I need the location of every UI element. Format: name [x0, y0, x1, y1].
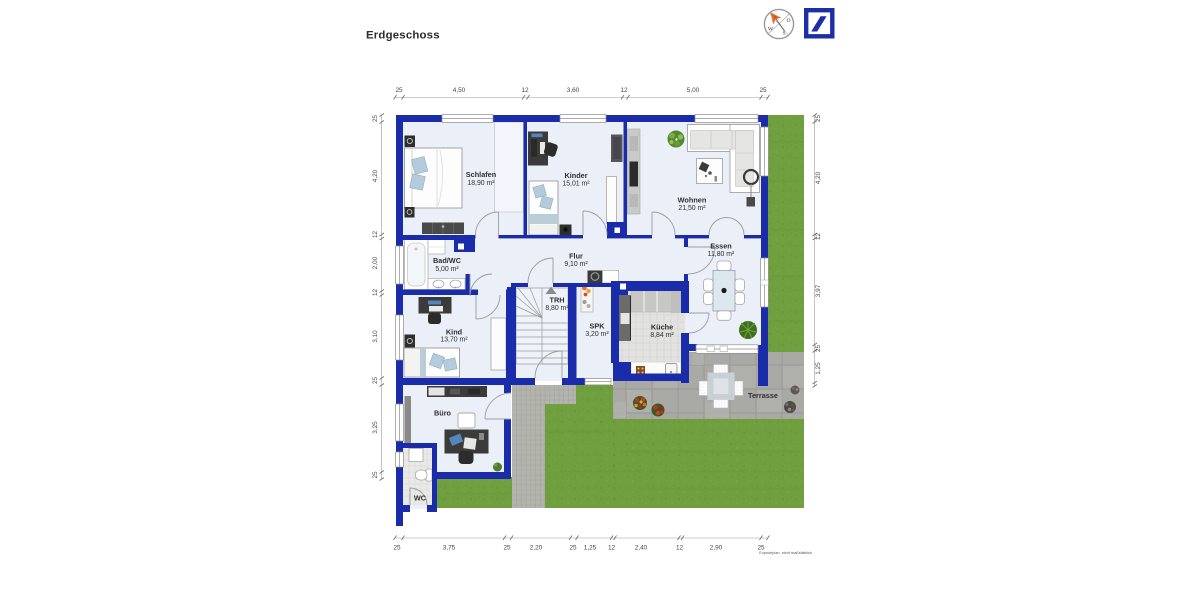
svg-text:9,10 m²: 9,10 m²	[564, 261, 588, 268]
svg-text:5,00: 5,00	[687, 87, 700, 94]
svg-text:25: 25	[569, 545, 577, 552]
svg-text:3,60: 3,60	[567, 87, 580, 94]
svg-text:25: 25	[759, 87, 767, 94]
svg-text:18,90 m²: 18,90 m²	[467, 180, 495, 187]
svg-text:Schlafen: Schlafen	[466, 170, 496, 179]
svg-text:12: 12	[676, 545, 684, 552]
svg-text:SPK: SPK	[589, 322, 605, 331]
svg-text:Terrasse: Terrasse	[748, 391, 778, 400]
svg-text:Flur: Flur	[569, 252, 583, 261]
svg-text:Erdgeschoss: Erdgeschoss	[366, 30, 440, 42]
svg-text:11,80 m²: 11,80 m²	[708, 251, 735, 258]
svg-text:13,70 m²: 13,70 m²	[440, 337, 468, 344]
svg-text:25: 25	[372, 377, 379, 385]
svg-text:1,25: 1,25	[815, 362, 822, 375]
svg-text:25: 25	[372, 115, 379, 123]
svg-text:Bad/WC: Bad/WC	[433, 256, 462, 265]
svg-text:8,84 m²: 8,84 m²	[650, 332, 674, 339]
svg-text:2,20: 2,20	[530, 545, 543, 552]
svg-text:12: 12	[521, 87, 529, 94]
svg-text:WC: WC	[414, 494, 427, 503]
svg-text:Kinder: Kinder	[564, 171, 587, 180]
svg-text:W: W	[768, 27, 774, 33]
svg-text:TRH: TRH	[550, 296, 565, 305]
svg-text:Exposéplan, nicht maßstäblich: Exposéplan, nicht maßstäblich	[759, 550, 812, 555]
svg-text:12: 12	[815, 233, 822, 241]
svg-text:Essen: Essen	[710, 242, 732, 251]
svg-text:3,20 m²: 3,20 m²	[585, 331, 609, 338]
svg-text:21,50 m²: 21,50 m²	[678, 205, 706, 212]
svg-text:25: 25	[815, 115, 822, 123]
svg-text:4,20: 4,20	[372, 169, 379, 182]
svg-text:25: 25	[503, 545, 511, 552]
svg-text:3,25: 3,25	[372, 421, 379, 434]
svg-text:Küche: Küche	[651, 323, 673, 332]
svg-text:25: 25	[395, 87, 403, 94]
svg-text:4,20: 4,20	[815, 171, 822, 184]
svg-text:Kind: Kind	[446, 328, 462, 337]
svg-text:Wohnen: Wohnen	[678, 196, 707, 205]
svg-text:15,01 m²: 15,01 m²	[562, 181, 590, 188]
svg-text:12: 12	[372, 231, 379, 239]
svg-text:12: 12	[620, 87, 628, 94]
svg-text:12: 12	[372, 289, 379, 297]
svg-text:3,10: 3,10	[372, 330, 379, 343]
svg-text:Büro: Büro	[434, 409, 452, 418]
svg-text:12: 12	[608, 545, 616, 552]
svg-text:S: S	[782, 31, 785, 37]
svg-text:25: 25	[815, 345, 822, 353]
svg-text:3,97: 3,97	[815, 284, 822, 297]
svg-text:2,40: 2,40	[635, 545, 648, 552]
svg-text:O: O	[786, 18, 790, 24]
svg-text:25: 25	[393, 545, 401, 552]
svg-text:1,25: 1,25	[584, 545, 597, 552]
svg-text:3,75: 3,75	[443, 545, 456, 552]
svg-text:2,90: 2,90	[710, 545, 723, 552]
svg-text:25: 25	[372, 471, 379, 479]
svg-text:2,00: 2,00	[372, 256, 379, 269]
svg-text:4,50: 4,50	[453, 87, 466, 94]
svg-text:8,80 m²: 8,80 m²	[545, 305, 569, 312]
svg-text:5,00 m²: 5,00 m²	[435, 266, 459, 273]
